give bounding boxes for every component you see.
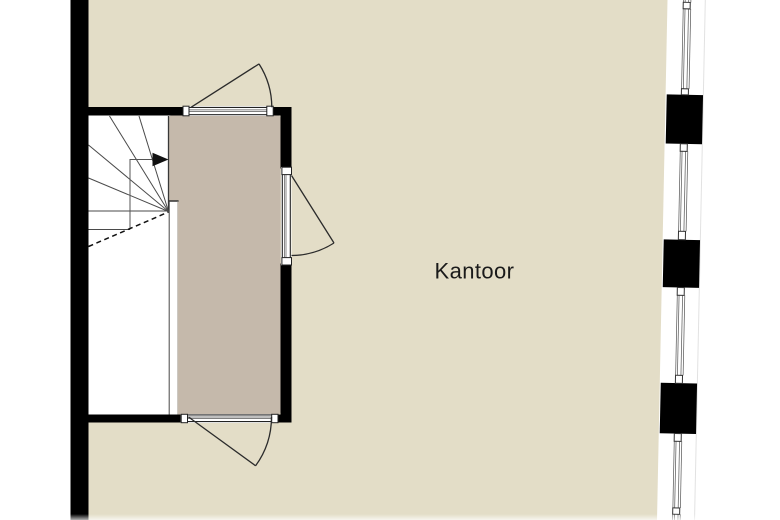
svg-text:Kantoor: Kantoor [435,259,515,284]
